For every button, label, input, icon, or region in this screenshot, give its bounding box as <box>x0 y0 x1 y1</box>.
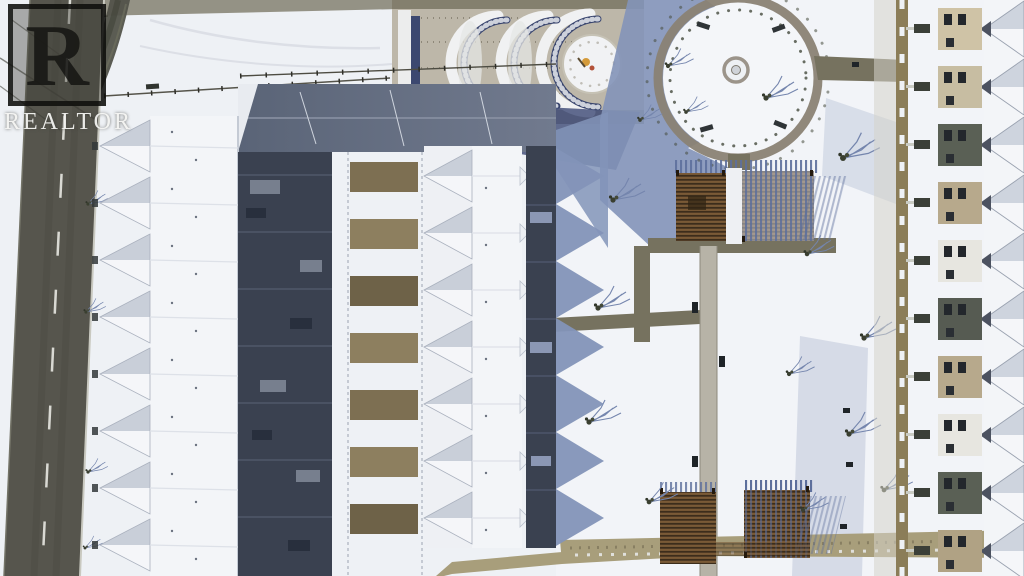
left-row-roof <box>150 116 238 576</box>
aerial-photo-art <box>0 0 1024 576</box>
central-townhouse-row <box>424 146 556 548</box>
aerial-photo: R REALTOR <box>0 0 1024 576</box>
right-sidewalk <box>874 0 896 576</box>
bench <box>146 84 159 90</box>
